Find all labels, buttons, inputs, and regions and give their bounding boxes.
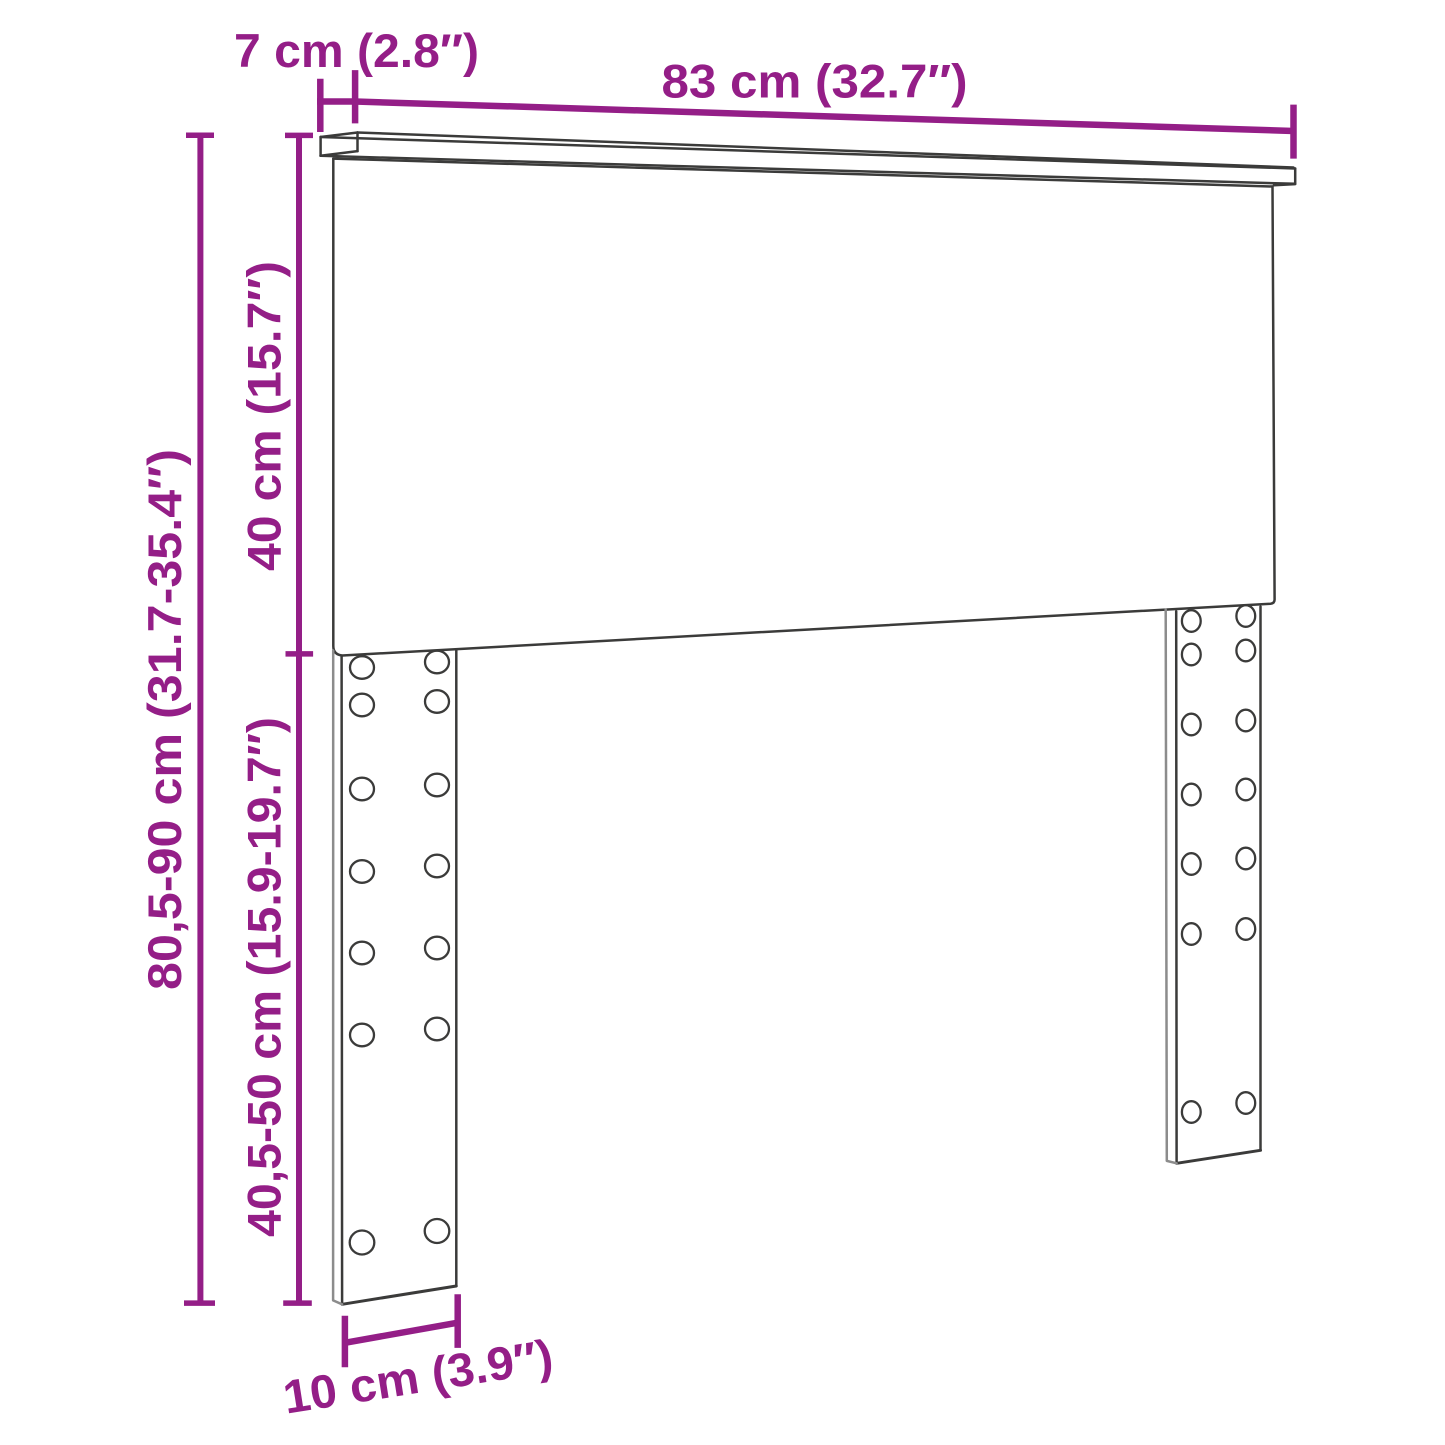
svg-text:83 cm (32.7″): 83 cm (32.7″) bbox=[662, 55, 968, 108]
svg-text:80,5-90 cm (31.7-35.4″): 80,5-90 cm (31.7-35.4″) bbox=[138, 449, 191, 990]
svg-text:40,5-50 cm (15.9-19.7″): 40,5-50 cm (15.9-19.7″) bbox=[238, 717, 291, 1237]
svg-text:40 cm (15.7″): 40 cm (15.7″) bbox=[238, 261, 291, 571]
svg-text:7 cm (2.8″): 7 cm (2.8″) bbox=[234, 24, 479, 77]
